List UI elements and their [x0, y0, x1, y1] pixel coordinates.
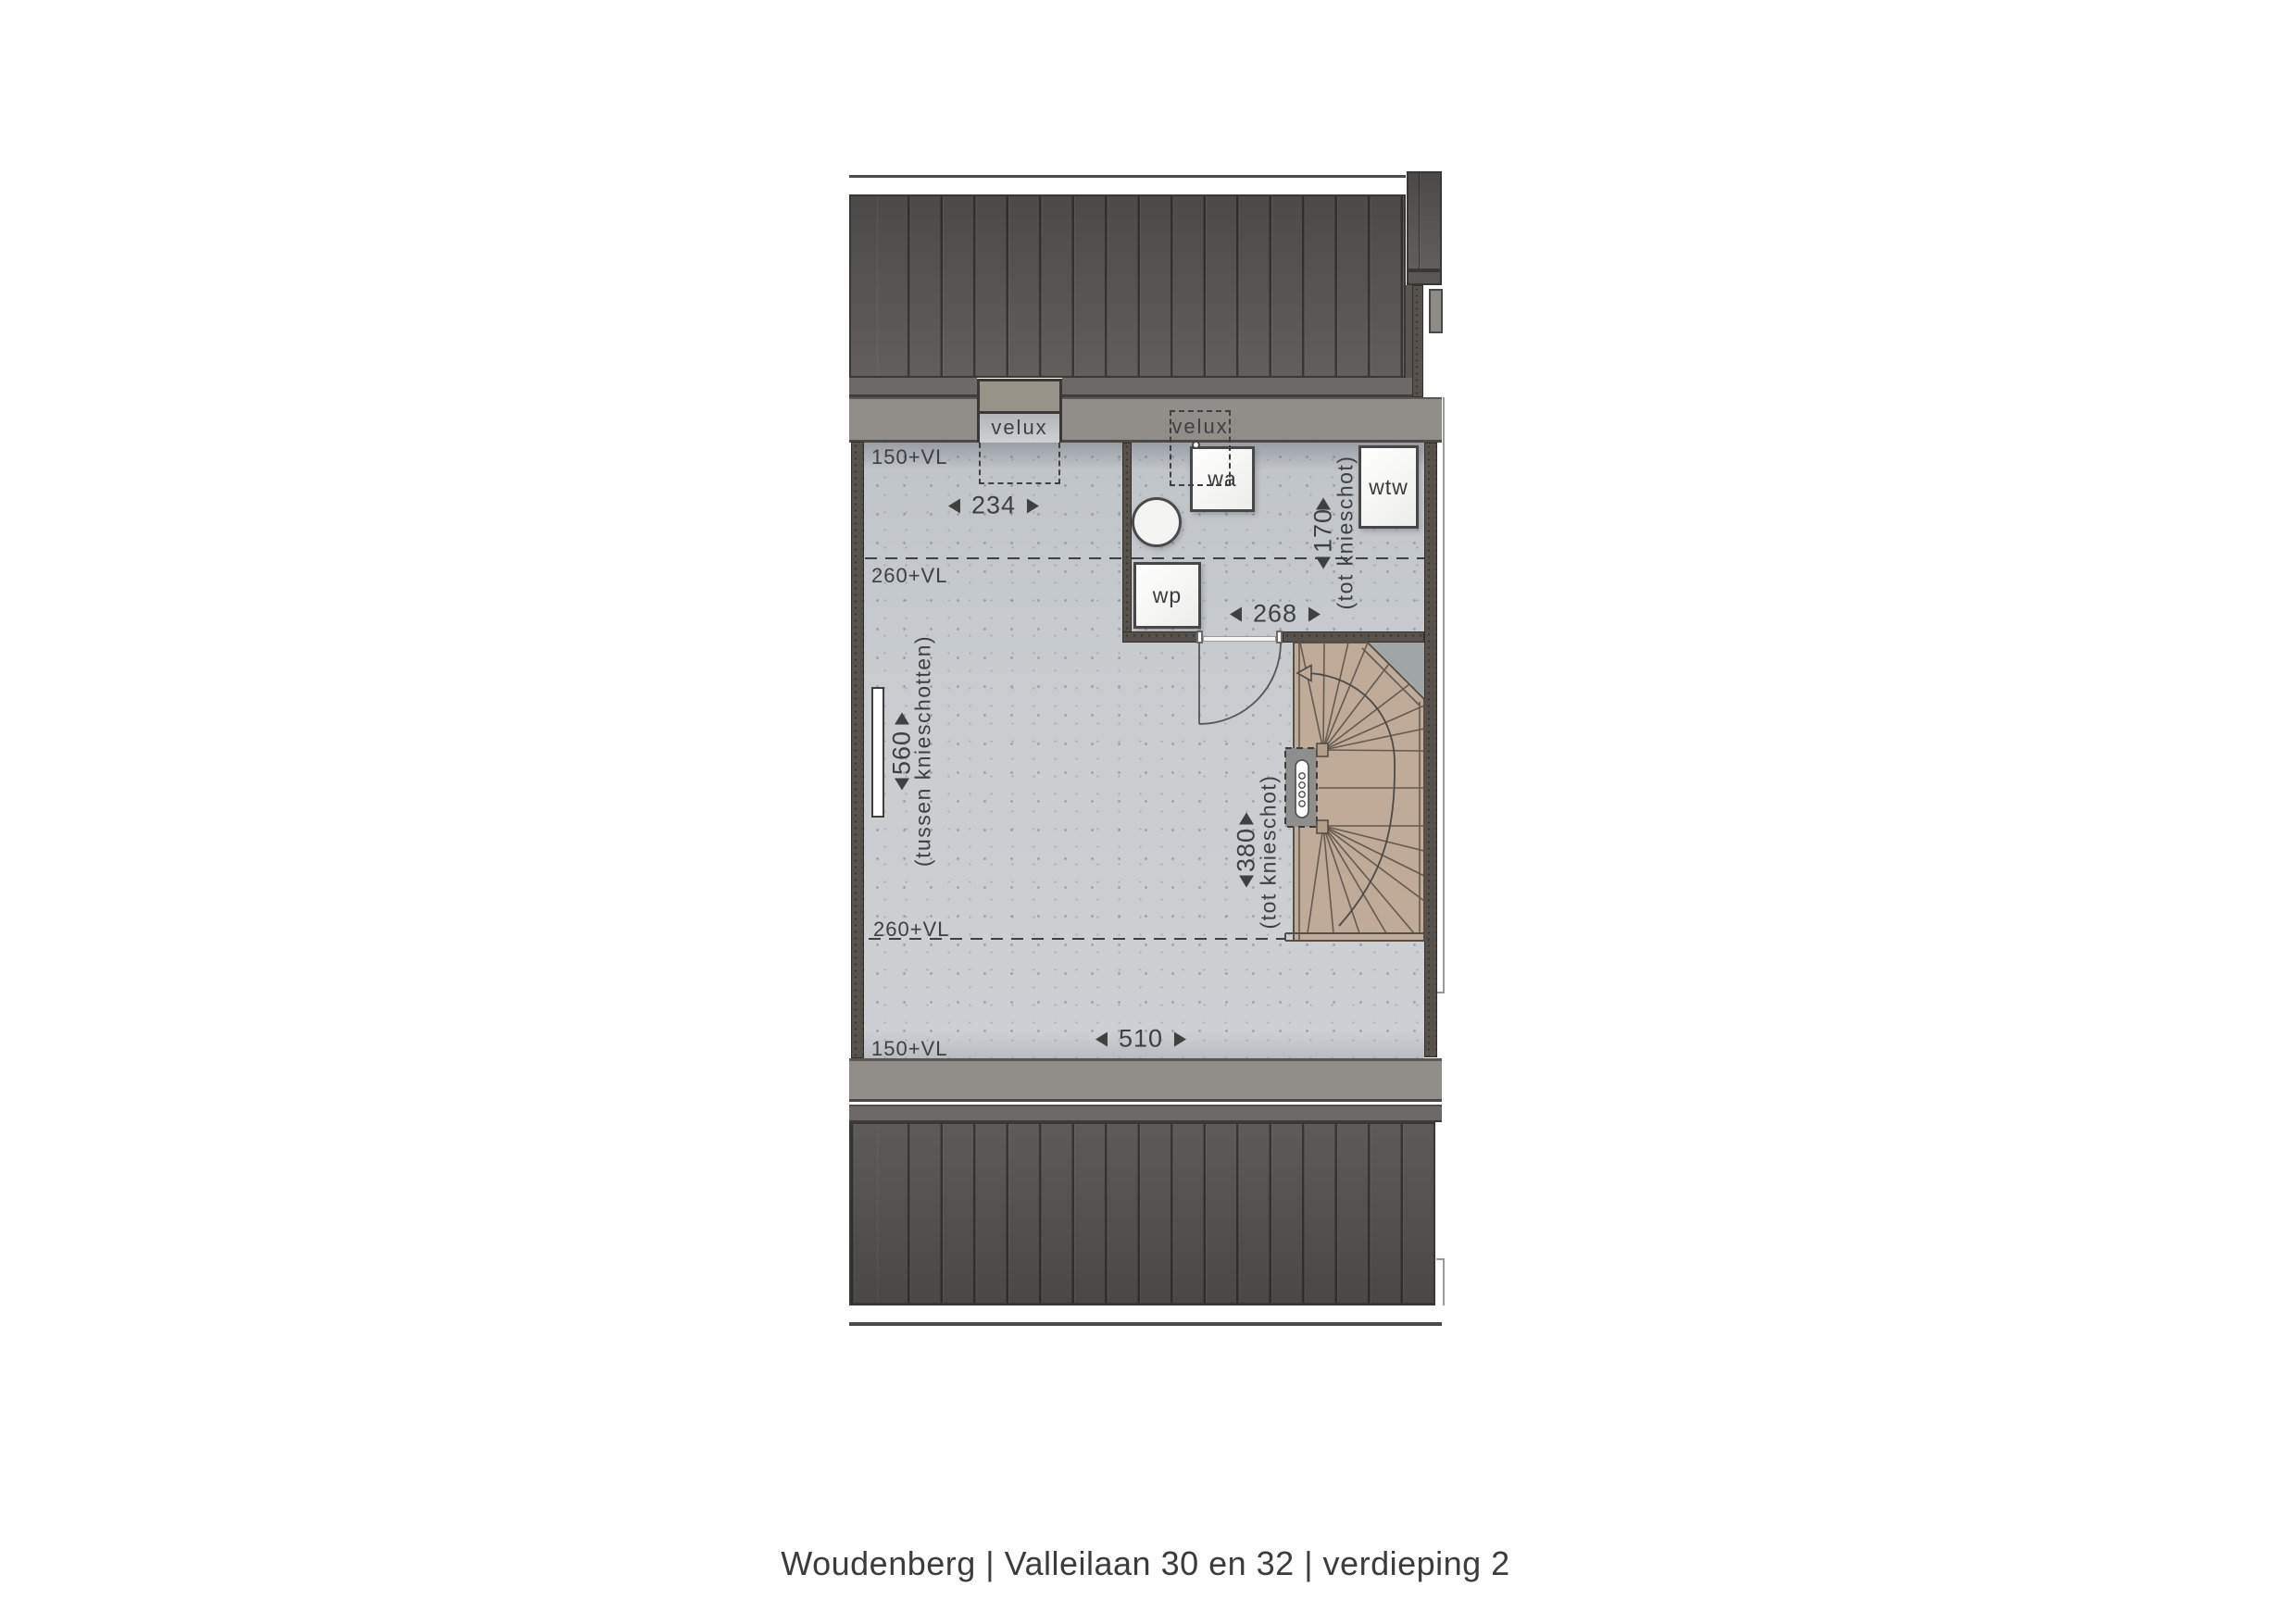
roof-bottom — [849, 1122, 1435, 1305]
roof-eave-line — [849, 1322, 1442, 1326]
dimension-380-note: (tot knieschot) — [1257, 775, 1282, 930]
dimension-170-note: (tot knieschot) — [1333, 456, 1358, 610]
dimension-510-value: 510 — [1119, 1025, 1163, 1054]
dim-arrow-down-icon — [1316, 557, 1331, 569]
ridge-strip-bottom — [849, 1105, 1442, 1122]
level-150vl-top: 150+VL — [871, 445, 947, 469]
dim-arrow-down-icon — [895, 779, 909, 791]
stair-newel-post-top — [1317, 743, 1328, 756]
level-260vl-bottom: 260+VL — [873, 918, 949, 942]
door-swing-arc — [1199, 643, 1281, 724]
gutter-band-bottom — [849, 1058, 1442, 1102]
dimension-560-note: (tussen knieschotten) — [911, 635, 936, 867]
stair-spindle-slot — [1296, 760, 1308, 818]
dim-arrow-up-icon — [1239, 813, 1254, 825]
dim-arrow-down-icon — [1239, 876, 1254, 888]
level-260vl-top: 260+VL — [871, 564, 947, 588]
dim-arrow-right-icon — [1027, 498, 1039, 513]
dim-arrow-left-icon — [948, 498, 960, 513]
staircase-and-door — [0, 0, 2291, 1624]
dim-arrow-right-icon — [1174, 1031, 1186, 1046]
stair-newel-post-bottom — [1317, 820, 1328, 833]
vl-line-upper-left — [865, 557, 1122, 559]
dim-arrow-right-icon — [1308, 606, 1321, 621]
floorplan-page: velux wa wtw wp velux — [0, 0, 2291, 1624]
dimension-268-value: 268 — [1253, 600, 1297, 629]
dimension-510: 510 — [1095, 1025, 1186, 1054]
dim-arrow-up-icon — [895, 713, 909, 725]
dim-arrow-left-icon — [1095, 1031, 1108, 1046]
dimension-268: 268 — [1230, 600, 1321, 629]
dimension-234-value: 234 — [971, 492, 1016, 520]
vl-line-upper-right — [1132, 557, 1424, 559]
page-title: Woudenberg | Valleilaan 30 en 32 | verdi… — [0, 1544, 2291, 1583]
dimension-234: 234 — [948, 492, 1039, 520]
dim-arrow-left-icon — [1230, 606, 1242, 621]
